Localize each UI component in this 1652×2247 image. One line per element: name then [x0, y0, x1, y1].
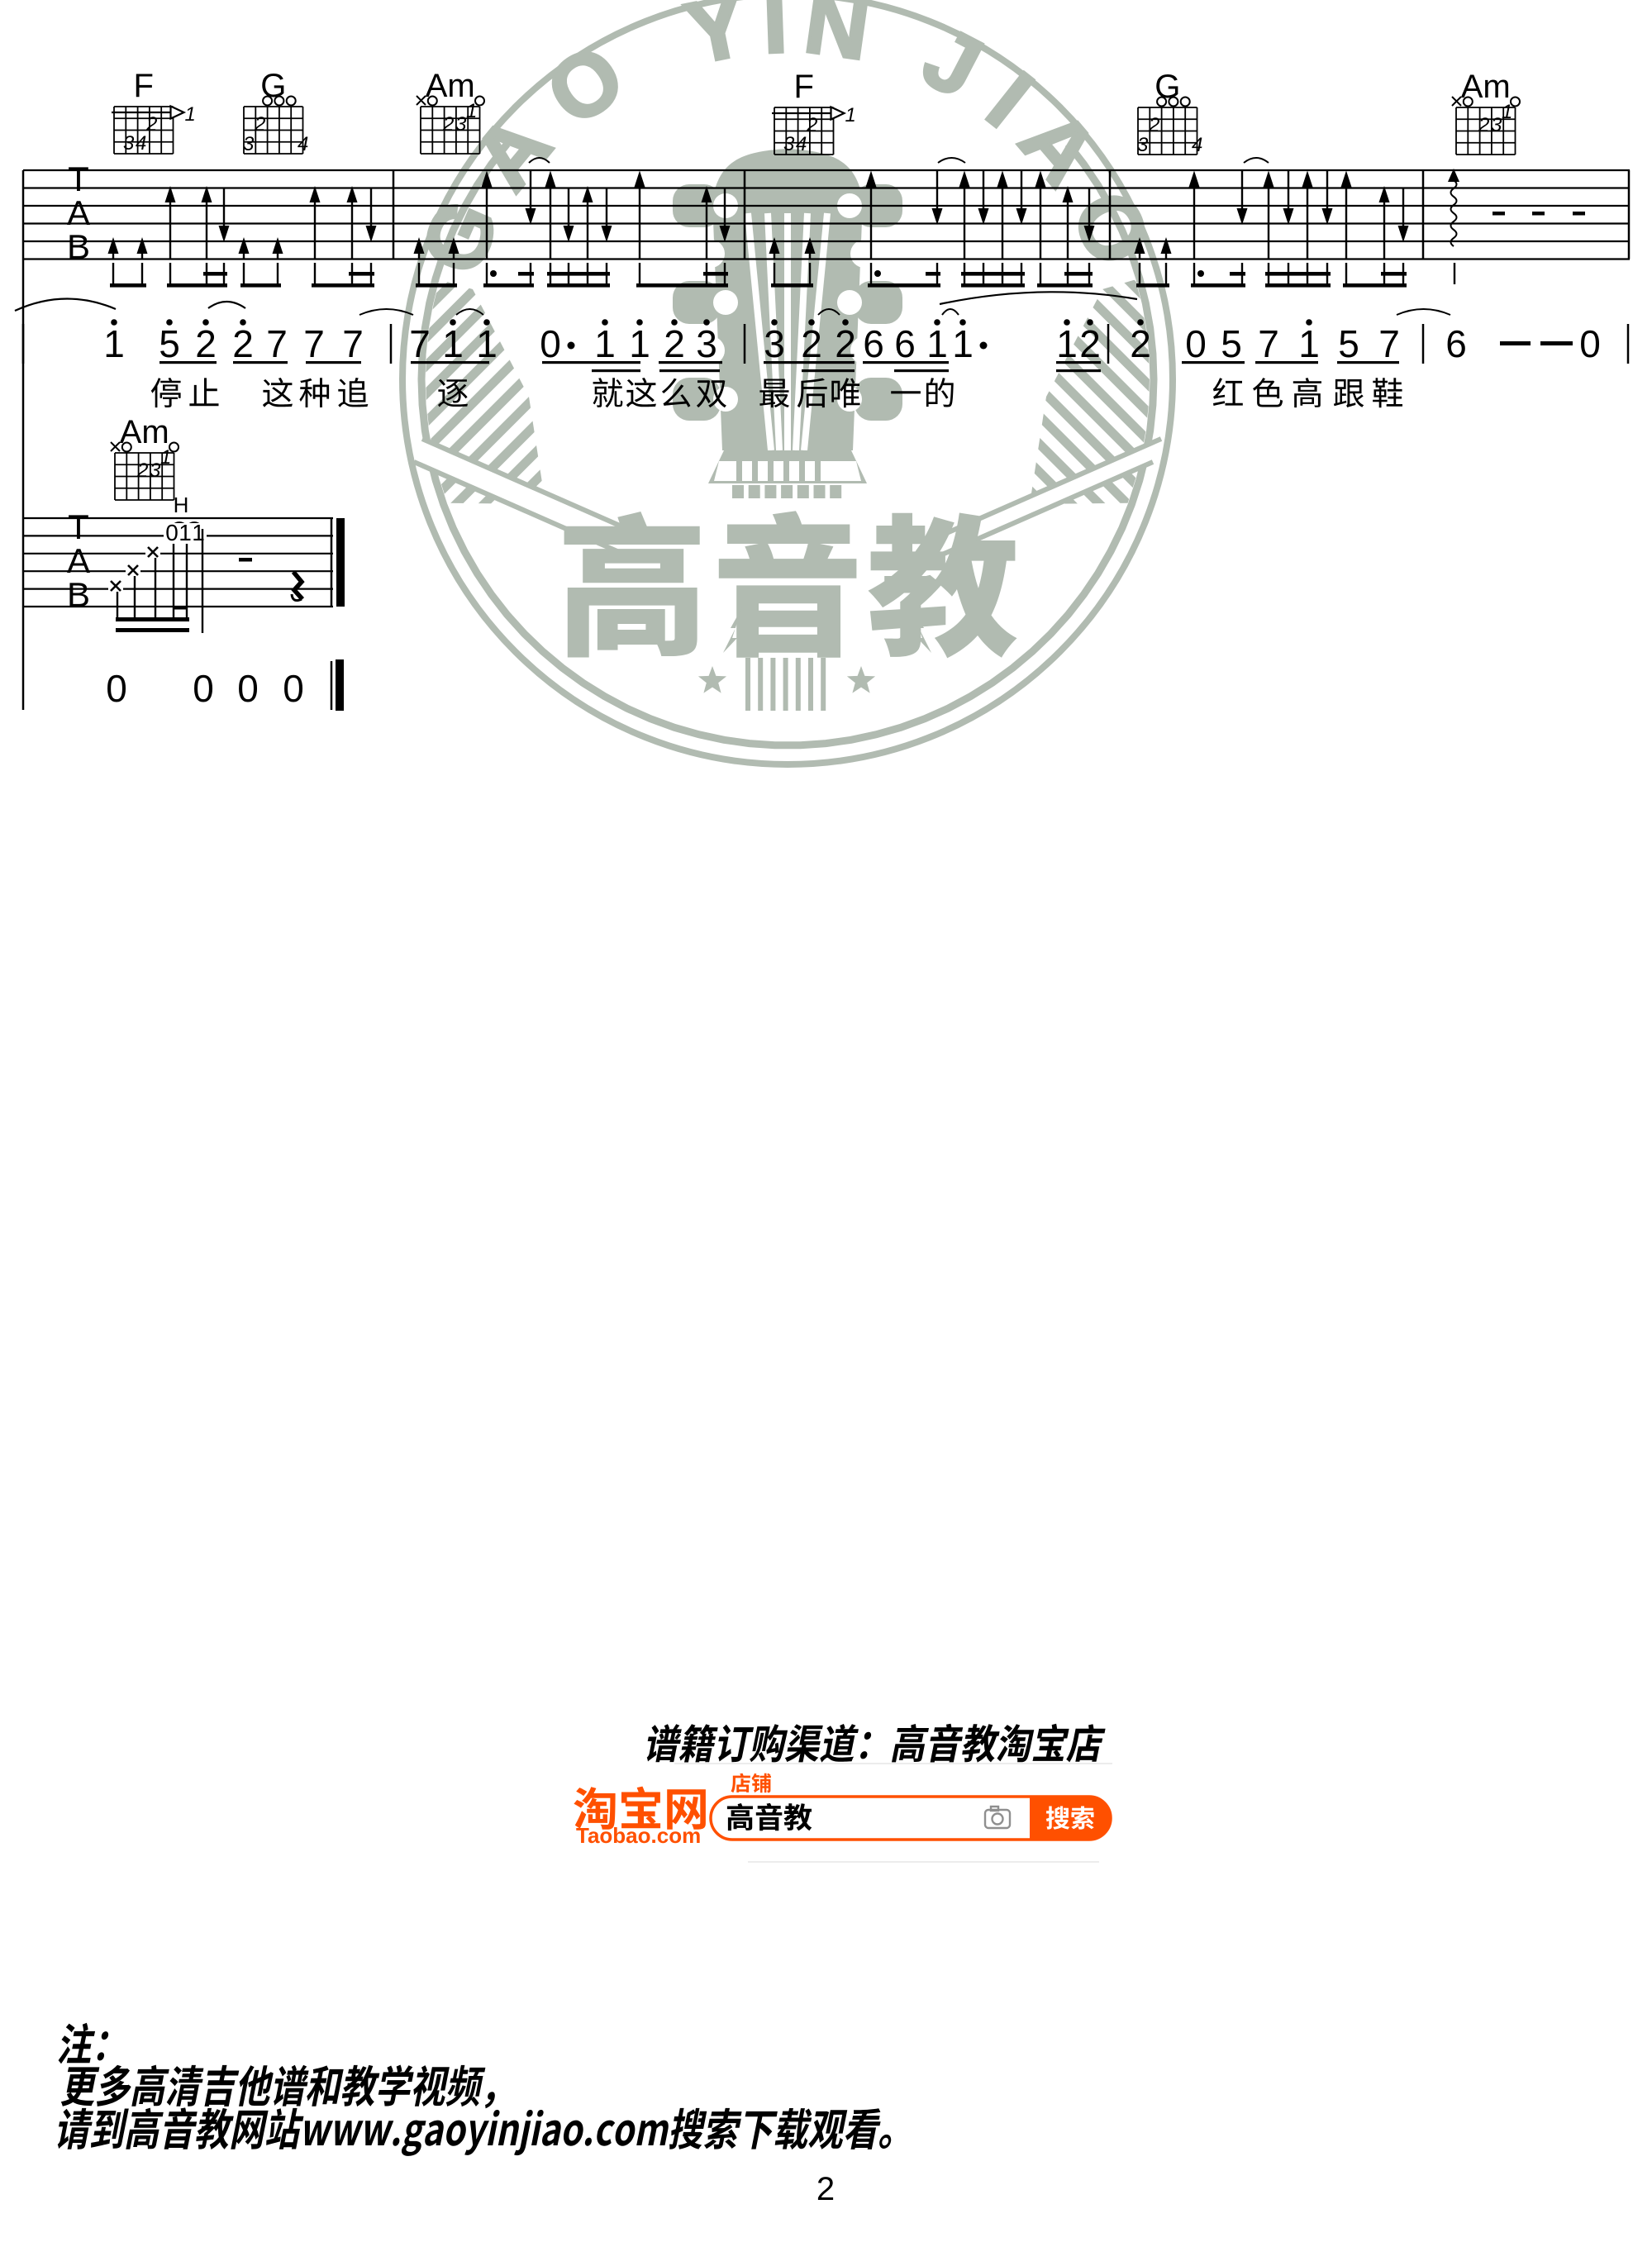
- svg-text:1: 1: [442, 322, 464, 365]
- svg-text:B: B: [67, 227, 90, 266]
- svg-text:6: 6: [894, 322, 916, 365]
- svg-text:I: I: [761, 0, 789, 72]
- svg-text:Taobao.com: Taobao.com: [576, 1823, 701, 1848]
- svg-text:5: 5: [1338, 322, 1359, 365]
- svg-text:Am: Am: [120, 414, 169, 450]
- svg-text:1: 1: [926, 322, 948, 365]
- svg-text:4: 4: [136, 132, 146, 155]
- svg-text:3: 3: [764, 322, 785, 365]
- svg-text:2: 2: [664, 322, 685, 365]
- svg-text:2: 2: [254, 113, 265, 136]
- svg-text:7: 7: [266, 322, 288, 365]
- svg-text:1: 1: [1502, 101, 1512, 123]
- svg-text:0: 0: [1185, 322, 1207, 365]
- svg-text:1: 1: [103, 322, 125, 365]
- svg-text:B: B: [67, 575, 90, 614]
- svg-text:7: 7: [409, 322, 431, 365]
- svg-text:F: F: [134, 68, 154, 104]
- svg-text:1: 1: [476, 322, 498, 365]
- svg-text:2: 2: [1079, 322, 1101, 365]
- svg-text:F: F: [794, 69, 814, 105]
- svg-text:0: 0: [283, 667, 304, 710]
- svg-text:2: 2: [232, 322, 254, 365]
- svg-text:0: 0: [237, 667, 259, 710]
- svg-text:1: 1: [845, 104, 856, 126]
- svg-text:2: 2: [195, 322, 217, 365]
- svg-text:A: A: [67, 193, 90, 232]
- svg-text:T: T: [68, 159, 89, 198]
- svg-text:H: H: [174, 493, 189, 517]
- svg-text:4: 4: [1192, 134, 1202, 156]
- svg-text:1: 1: [952, 322, 974, 365]
- svg-text:T: T: [68, 507, 89, 546]
- svg-text:3: 3: [123, 132, 135, 155]
- svg-text:3: 3: [1491, 114, 1502, 136]
- svg-text:0: 0: [1579, 322, 1601, 365]
- svg-text:0: 0: [193, 667, 214, 710]
- svg-text:3: 3: [1137, 134, 1149, 156]
- svg-text:5: 5: [1221, 322, 1242, 365]
- svg-text:2: 2: [816, 2171, 835, 2207]
- svg-text:7: 7: [342, 322, 364, 365]
- svg-text:3: 3: [150, 459, 161, 482]
- svg-text:5: 5: [159, 322, 180, 365]
- svg-text:2: 2: [136, 459, 148, 482]
- svg-text:4: 4: [796, 133, 807, 155]
- svg-text:2: 2: [806, 114, 817, 136]
- svg-text:3: 3: [455, 113, 467, 136]
- svg-text:2: 2: [835, 322, 856, 365]
- svg-text:1: 1: [1298, 322, 1320, 365]
- svg-text:7: 7: [303, 322, 325, 365]
- svg-text:1: 1: [594, 322, 616, 365]
- svg-text:2: 2: [145, 113, 157, 136]
- svg-text:1: 1: [466, 100, 477, 122]
- svg-text:0: 0: [165, 520, 179, 545]
- svg-text:2: 2: [442, 113, 454, 136]
- svg-text:7: 7: [1378, 322, 1400, 365]
- svg-text:3: 3: [243, 133, 255, 155]
- svg-text:Am: Am: [1461, 69, 1511, 105]
- svg-text:1: 1: [629, 322, 650, 365]
- svg-text:1: 1: [185, 103, 196, 126]
- svg-text:0: 0: [540, 322, 561, 365]
- svg-text:1: 1: [160, 446, 171, 469]
- svg-text:2: 2: [1130, 322, 1151, 365]
- svg-text:7: 7: [1258, 322, 1279, 365]
- svg-text:3: 3: [696, 322, 717, 365]
- svg-text:2: 2: [801, 322, 822, 365]
- svg-text:0: 0: [106, 667, 127, 710]
- svg-text:6: 6: [1445, 322, 1467, 365]
- svg-text:4: 4: [298, 133, 308, 155]
- svg-text:Am: Am: [426, 68, 475, 104]
- svg-text:2: 2: [1148, 114, 1159, 136]
- svg-text:6: 6: [863, 322, 884, 365]
- svg-text:2: 2: [1478, 114, 1489, 136]
- svg-text:1: 1: [179, 520, 192, 545]
- svg-text:A: A: [67, 541, 90, 580]
- svg-text:1: 1: [1056, 322, 1078, 365]
- svg-text:3: 3: [783, 133, 795, 155]
